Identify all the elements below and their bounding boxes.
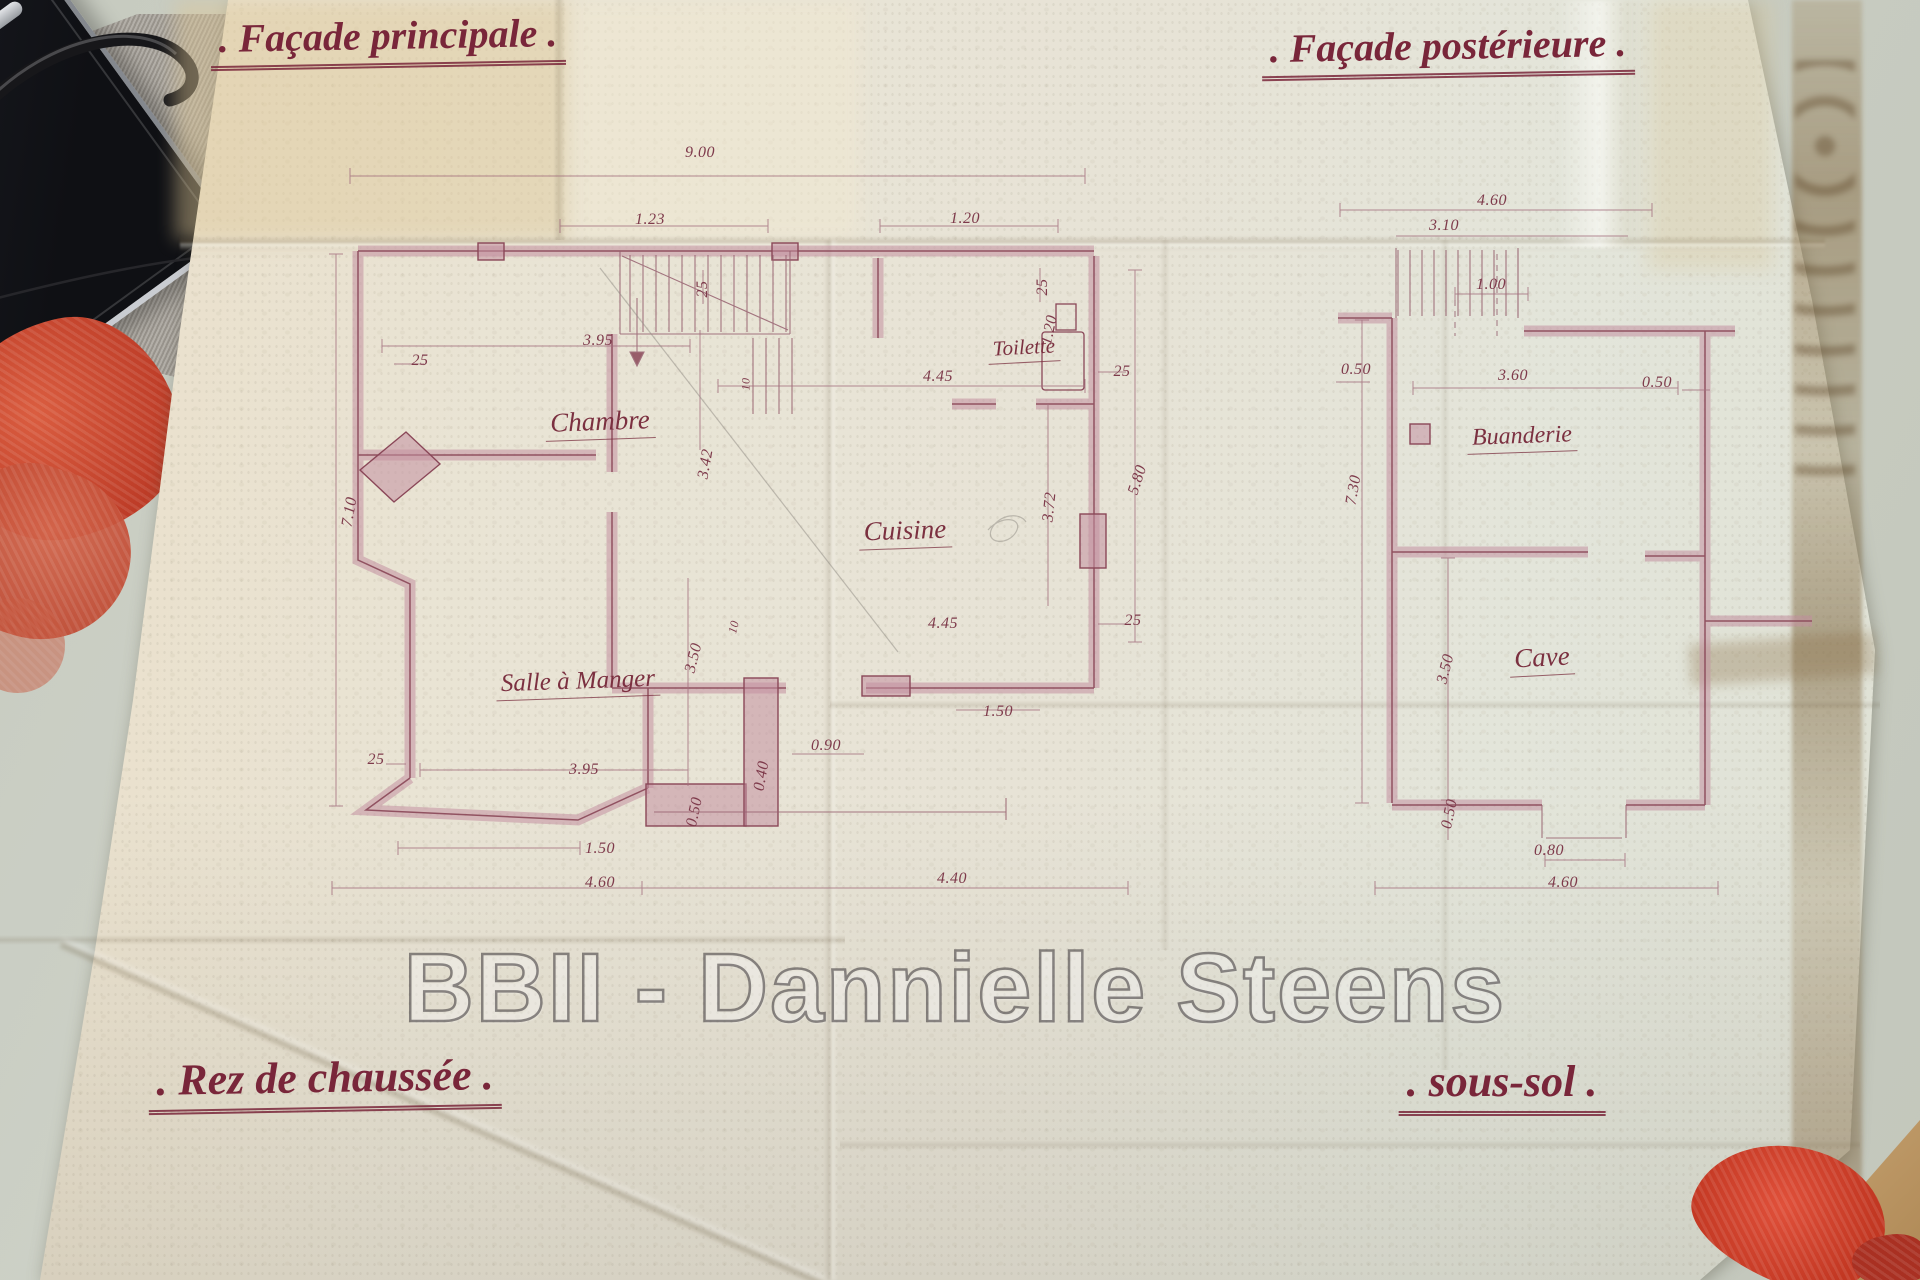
dim-label: 0.50 [1642, 374, 1672, 392]
room-label-cuisine: Cuisine [858, 513, 952, 550]
dim-label: 4.40 [937, 870, 967, 888]
ground-floor-piers [360, 243, 1106, 826]
dim-label: 25 [412, 352, 429, 370]
dim-label: 3.60 [1498, 367, 1528, 385]
dim-label: 3.10 [1429, 217, 1459, 235]
room-label-buanderie: Buanderie [1467, 421, 1578, 455]
dim-label: 4.60 [1548, 874, 1578, 892]
dim-label: 1.50 [983, 703, 1013, 721]
room-label-chambre: Chambre [545, 404, 656, 442]
watermark: BBII - Dannielle Steens [404, 932, 1507, 1044]
dim-label: 0.50 [1341, 361, 1371, 379]
basement-walls [1338, 318, 1812, 805]
room-label-cave: Cave [1508, 640, 1575, 677]
dim-label: 3.95 [569, 761, 599, 779]
dim-label: 25 [1034, 279, 1052, 296]
dim-label: 25 [694, 281, 712, 298]
dim-label: 3.95 [583, 332, 613, 350]
dim-label: 0.90 [811, 737, 841, 755]
dim-label: 0.80 [1534, 842, 1564, 860]
pencil-marks [600, 268, 1026, 652]
dim-label: 1.50 [585, 840, 615, 858]
dim-label: 1.23 [635, 211, 665, 229]
dim-label: 1.00 [1476, 276, 1506, 294]
dim-label: 25 [1114, 363, 1131, 381]
fireplace [360, 432, 440, 502]
plan-title-facade-posterieure: . Façade postérieure . [1261, 19, 1635, 81]
plan-title-facade-principale: . Façade principale . [210, 9, 566, 71]
dim-label: 25 [368, 751, 385, 769]
plan-title-rez-de-chaussee: . Rez de chaussée . [148, 1049, 502, 1115]
dim-label: 4.60 [585, 874, 615, 892]
dim-label: 4.45 [928, 615, 958, 633]
dim-label: 4.45 [923, 368, 953, 386]
photo-of-floorplan: . Façade principale . . Façade postérieu… [0, 0, 1920, 1280]
dim-label: 4.60 [1477, 192, 1507, 210]
dim-label: 1.20 [950, 210, 980, 228]
flue [1410, 424, 1430, 444]
dim-label: 3.72 [1039, 491, 1060, 523]
plan-title-sous-sol: . sous-sol . [1399, 1056, 1606, 1116]
room-label-salle-a-manger: Salle à Manger [495, 665, 660, 702]
dim-label: 10 [739, 378, 754, 391]
dim-label: 25 [1125, 612, 1142, 630]
ground-floor-walls [358, 243, 1106, 826]
dim-label: 9.00 [685, 144, 715, 162]
